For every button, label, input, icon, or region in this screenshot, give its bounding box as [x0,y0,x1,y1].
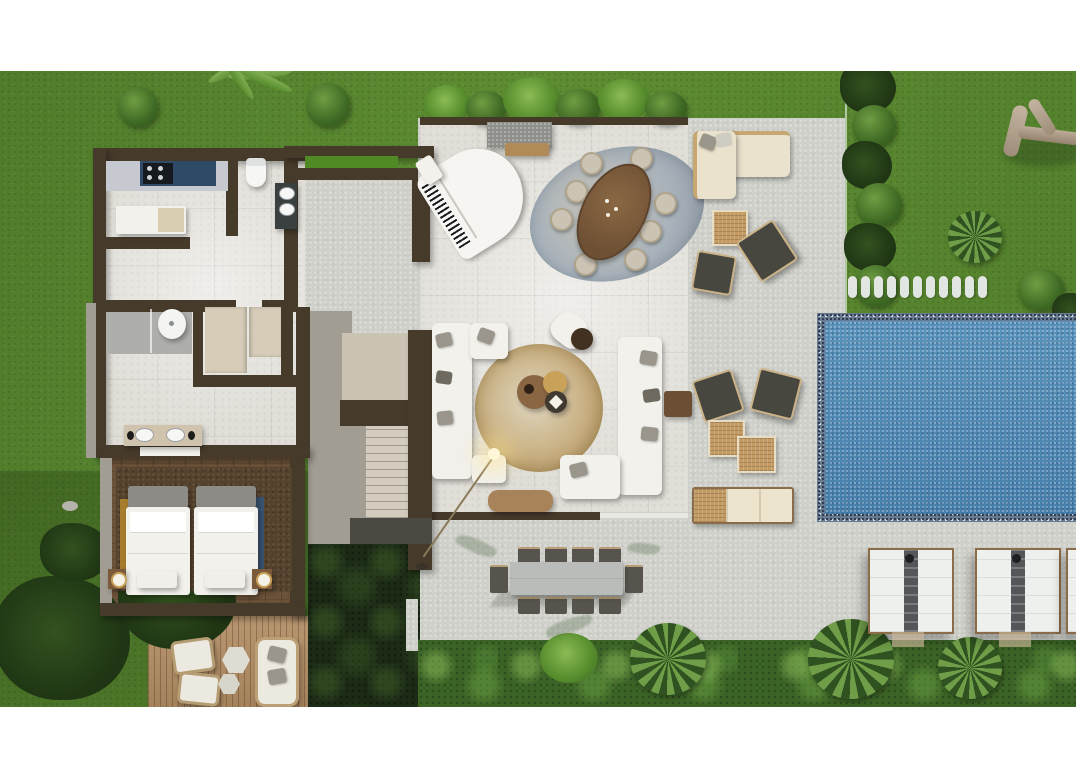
screenshot-canvas [0,0,1080,780]
lawn-curb-line [845,71,847,313]
lounger-mat-1 [892,632,924,647]
patio-chair-s2 [545,597,567,614]
tabletop-decor-3 [606,213,610,217]
double-vanity-sink-2 [166,428,185,442]
stair-wall-bottom [350,518,432,544]
lounger-towel-2 [1011,550,1025,632]
loveseat-pillow-2 [267,668,287,686]
patio-chair-e [625,565,643,593]
headboard-bed-2 [196,486,256,508]
garden-pebble [62,501,78,511]
stepping-stone-10 [965,276,974,298]
wall-courtyard-south [284,168,418,180]
patio-chair-s4 [599,597,621,614]
bed-2-duvet-fold [196,553,256,554]
bed-1-pillows [130,512,186,533]
lounger-1a [870,550,904,632]
sofa-right-pillow-2 [642,388,661,403]
vanity-sink-1 [279,187,295,200]
wall-bedroom-north [100,445,310,458]
bedroom-shelf [140,447,200,456]
wardrobe-1 [205,307,247,373]
shrub-border-deck [308,544,420,707]
double-vanity-sink-1 [135,428,154,442]
outdoor-dining-table [510,562,623,595]
wall-bath2-closet [193,303,203,383]
wall-below-kitchen [106,237,190,249]
glass-south [600,513,688,518]
patio-chair-w [490,565,508,593]
fan-palm-south-3 [938,637,1002,699]
towel-knob-1 [905,554,914,563]
wall-bedroom-west [100,458,112,616]
lounger-pair-3-partial [1066,548,1076,634]
wall-greatroom-south [420,512,600,520]
pool-water [825,321,1076,514]
bed-2-pillows [198,512,254,533]
pool-bench-cushion-1 [726,489,759,522]
arc-lamp-glow [488,448,500,460]
round-tree-2 [306,83,350,127]
bed-1-bench [137,571,177,588]
pool-bench [692,487,794,524]
stepping-stone-9 [952,276,961,298]
pool-bench-rattan [694,489,726,522]
stepping-stone-1 [848,276,857,298]
stepping-stone-8 [939,276,948,298]
lamp-left [111,572,127,588]
lounger-1b [918,550,952,632]
wall-bedroom-east [290,458,305,616]
dining-chair-3 [580,152,603,175]
floor-plan-scene [0,71,1076,707]
dining-chair-6 [654,192,677,215]
fan-palm-south-1 [630,623,706,695]
palm-band-3 [842,141,892,189]
island-stool [158,208,184,232]
sofa-side-table [664,391,692,417]
patio-chair-s3 [572,597,594,614]
lamp-right [256,572,272,588]
towel-knob-2 [1012,554,1021,563]
sofa-right-arm [560,455,620,499]
stepping-stone-5 [900,276,909,298]
rattan-table-2 [737,436,776,473]
agave-plant [948,211,1002,263]
sofa-right-pillow-3 [640,426,658,442]
lounger-pair-2 [975,548,1061,634]
round-tree-1 [118,87,158,127]
vanity-tap-1 [127,431,134,440]
lounger-2a [977,550,1011,632]
stair-wall-left [352,426,366,526]
burner-1 [147,166,152,171]
deck-chair-1 [170,636,216,676]
stair-landing [342,333,410,400]
dining-chair-1 [550,208,573,231]
bed-1-duvet-fold [128,553,188,554]
deck-chair-2 [176,671,221,707]
wall-wing-north [93,148,310,161]
lounger-towel-1 [904,550,918,632]
stepping-stone-2 [861,276,870,298]
wall-closet-east [281,303,293,383]
tabletop-decor-2 [614,207,618,211]
palm-band-4 [856,183,902,227]
wall-hall-south [193,375,310,387]
outdoor-sofa-pillow-2 [715,132,733,149]
tropical-shrub-south [540,633,598,683]
stepping-stone-7 [926,276,935,298]
burner-2 [158,166,163,171]
palm-band-5 [844,223,896,271]
console-bench [488,490,553,512]
sofa-left-pillow-3 [436,410,453,426]
stepping-stone-11 [978,276,987,298]
burner-3 [147,175,152,180]
burner-4 [158,175,163,180]
side-path [406,599,418,651]
sofa-right-pillow-1 [639,350,658,367]
staircase-steps [366,426,408,518]
vanity-sink-2 [279,203,295,216]
sofa-left-pillow-2 [435,370,453,385]
stepping-stone-3 [874,276,883,298]
armchair-side-table [571,328,593,350]
headboard-bed-1 [128,486,188,508]
arc-lamp-base [416,563,428,570]
wall-greatroom-north [420,117,688,125]
lounger-2b [1025,550,1059,632]
wall-bedroom-south [100,603,305,616]
patio-chair-s1 [518,597,540,614]
lounger-pair-1 [868,548,954,634]
lounger-mat-2 [999,632,1031,647]
lounger-3a [1068,550,1076,632]
tropical-north-5 [598,79,650,121]
dining-chair-4 [624,248,647,271]
shower-drain [169,321,174,326]
coffee-table-decor [524,384,534,394]
tabletop-decor-1 [605,199,609,203]
stepping-stone-4 [887,276,896,298]
shower-glass [150,309,152,353]
vanity-tap-2 [188,431,195,440]
wardrobe-2 [249,307,281,357]
ledge-west [86,303,96,458]
entry-bench [505,143,549,156]
toilet-tank [246,158,266,166]
bed-2-bench [205,571,245,588]
stepping-stone-6 [913,276,922,298]
pool-bench-cushion-2 [759,489,792,522]
wicker-chair-2 [691,250,737,296]
pool-mosaic-border [817,313,1076,522]
